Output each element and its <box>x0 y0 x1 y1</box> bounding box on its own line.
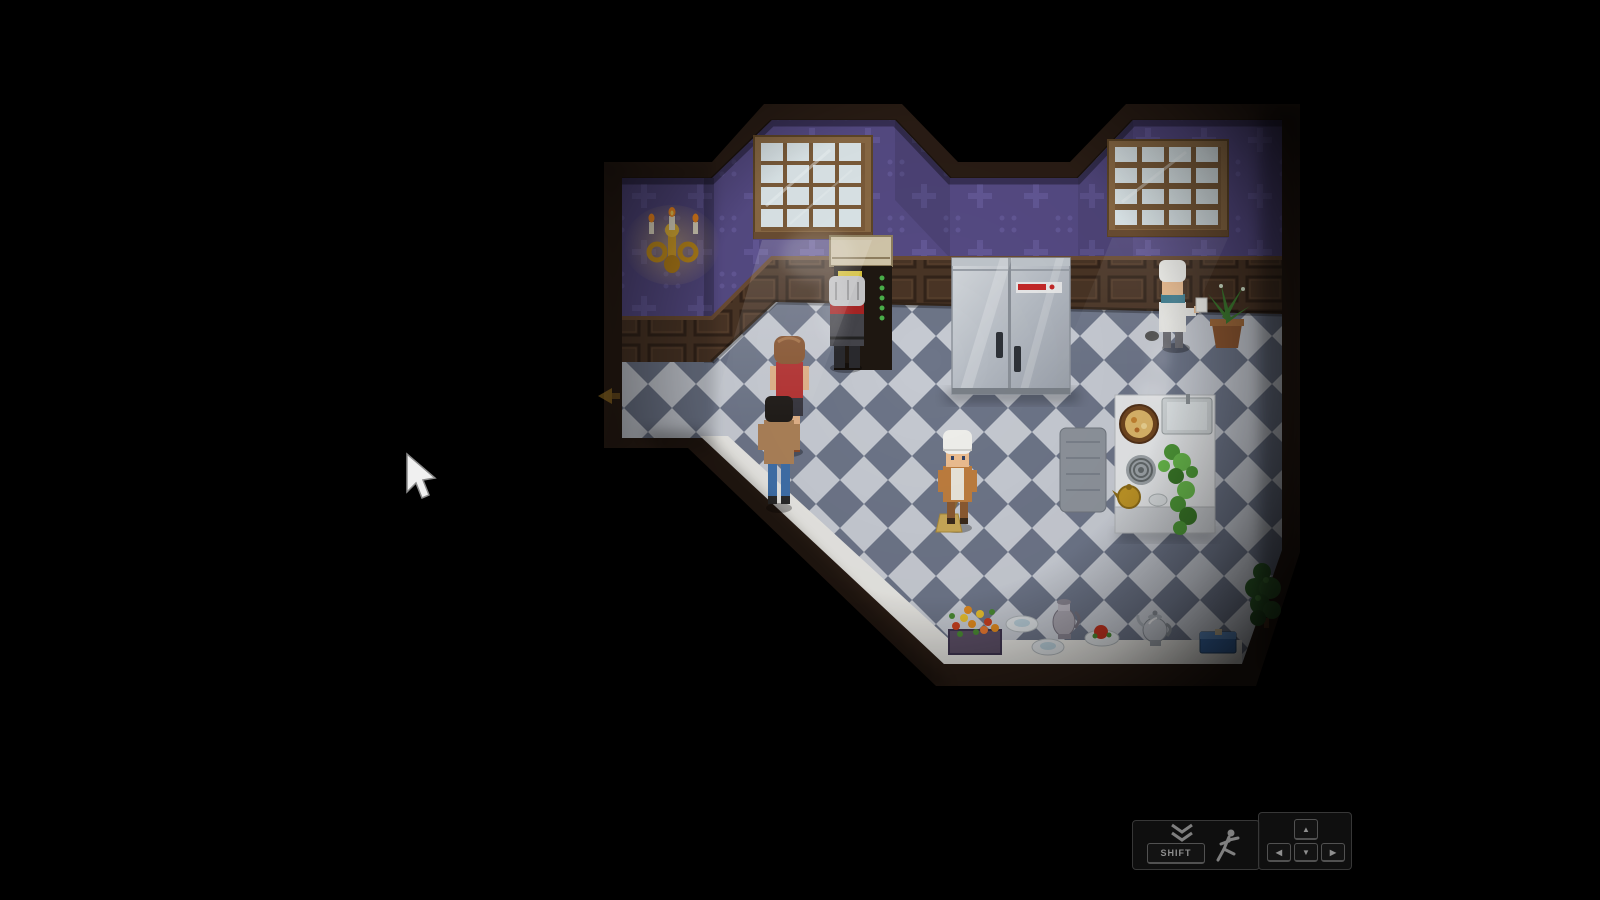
arrow-cursor-icon <box>403 452 443 500</box>
double-chevron-down-icon <box>1169 823 1195 843</box>
right-arrow-key[interactable]: ▶ <box>1321 843 1345 862</box>
down-arrow-key[interactable]: ▼ <box>1294 843 1318 862</box>
shift-keycap[interactable]: SHIFT <box>1147 843 1205 864</box>
game-viewport: SHIFT ▲ ◀ ▼ ▶ <box>0 0 1600 900</box>
running-person-icon <box>1213 827 1243 865</box>
mouse-cursor <box>403 452 443 500</box>
up-arrow-key[interactable]: ▲ <box>1294 819 1318 840</box>
vignette <box>590 95 1320 705</box>
move-keys-panel: ▲ ◀ ▼ ▶ <box>1258 812 1352 870</box>
dash-hint-panel: SHIFT <box>1132 820 1260 870</box>
left-arrow-key[interactable]: ◀ <box>1267 843 1291 862</box>
room-scene <box>590 95 1320 705</box>
